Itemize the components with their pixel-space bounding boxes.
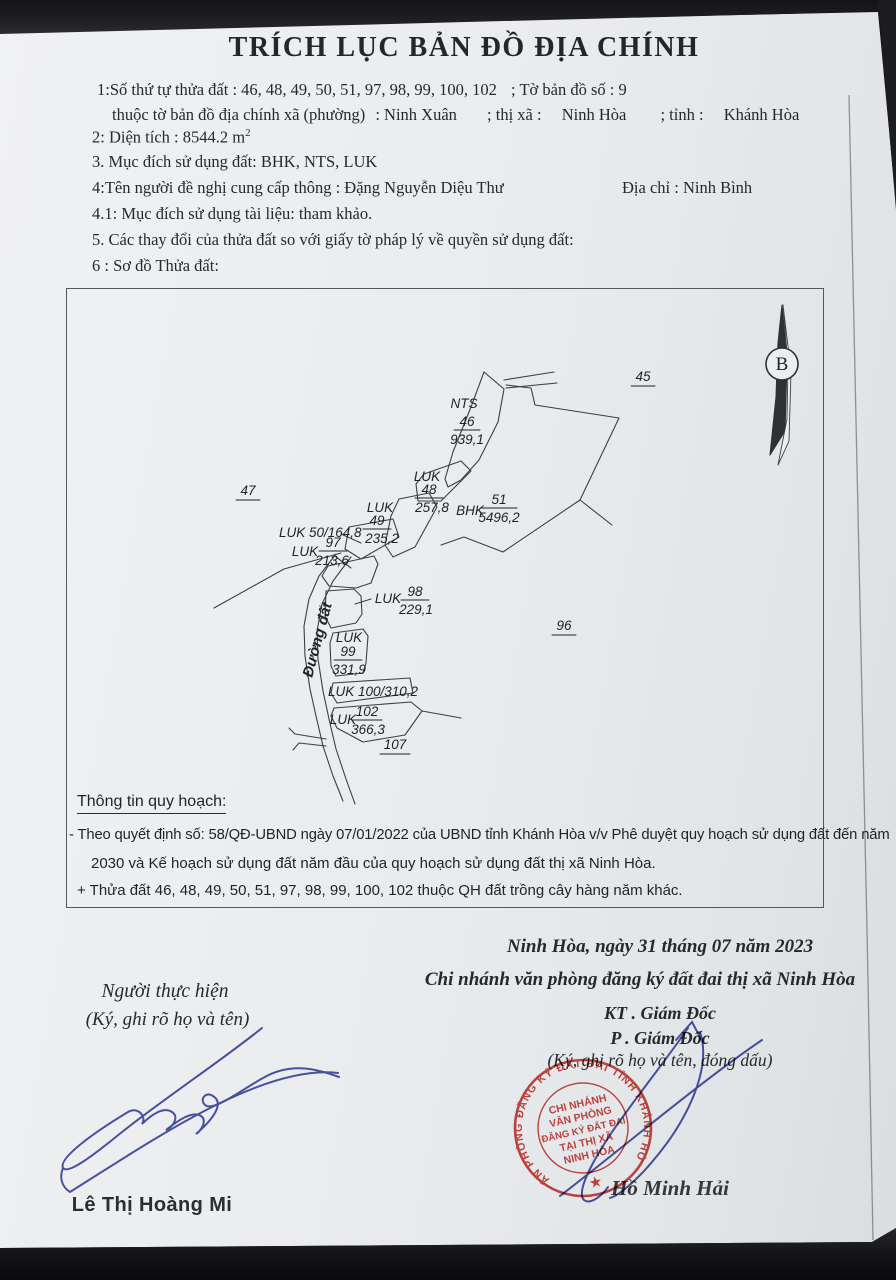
paper-edge-line [849,95,873,1240]
ink-overlay [0,0,896,1280]
photo-of-cadastral-document: TRÍCH LỤC BẢN ĐỒ ĐỊA CHÍNH 1:Số thứ tự t… [0,0,896,1280]
signature-right [582,1028,688,1201]
signature-left [63,1028,339,1169]
